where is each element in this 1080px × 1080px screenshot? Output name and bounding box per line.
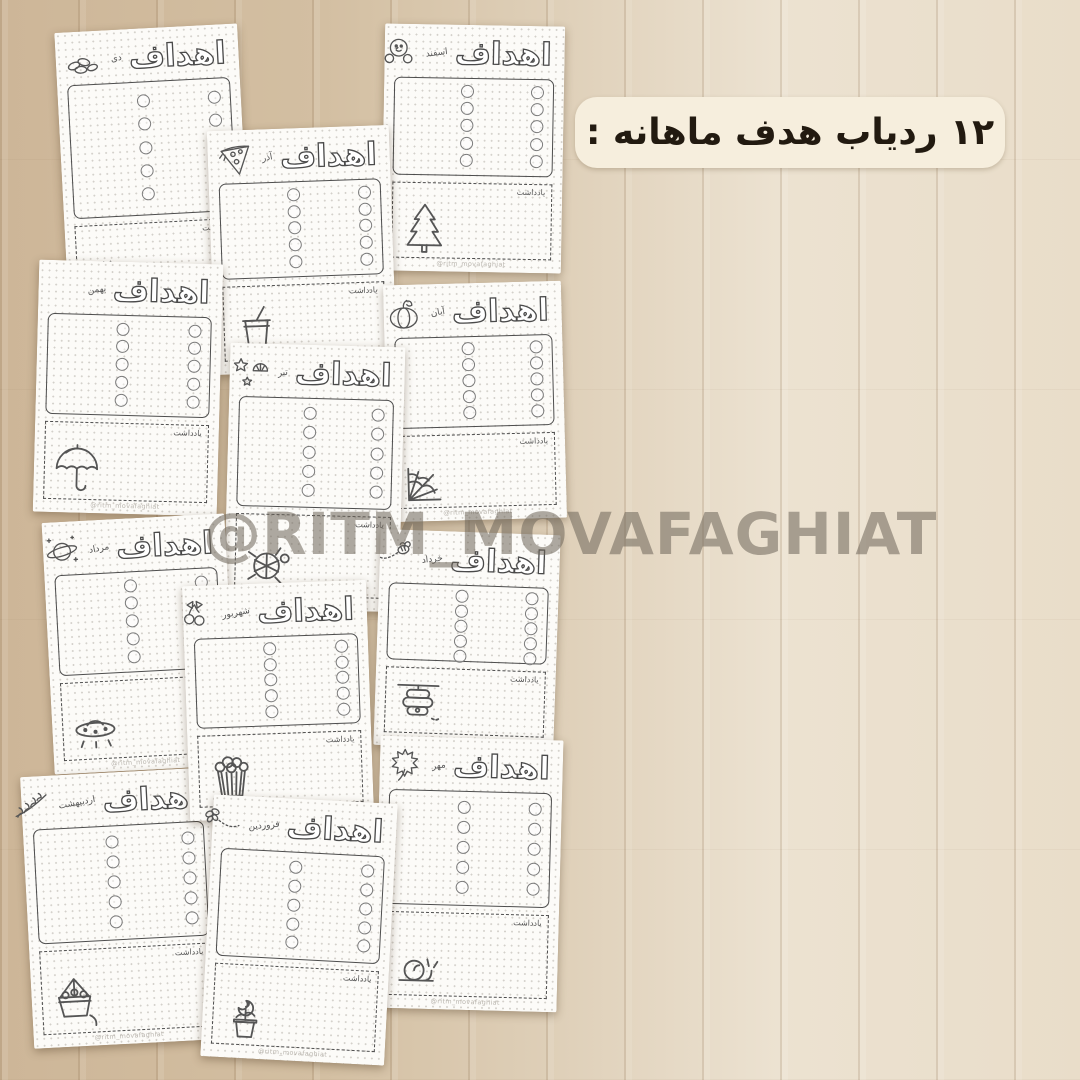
notes-label: یادداشت bbox=[519, 436, 548, 446]
month-label: اردیبهشت bbox=[58, 795, 96, 812]
goal-checkbox-circle bbox=[303, 426, 316, 439]
goal-row bbox=[38, 911, 208, 935]
goal-checkbox-circle bbox=[265, 705, 278, 718]
goal-checkbox-circle bbox=[527, 883, 540, 896]
page-header: اهداف آبان bbox=[392, 287, 553, 337]
notes-box: یادداشت bbox=[39, 943, 214, 1036]
goal-checkbox-circle bbox=[188, 360, 201, 373]
goals-checkbox-box bbox=[394, 334, 554, 429]
page-header: اهداف آذر bbox=[216, 131, 382, 183]
title-badge: ۱۲ ردیاب هدف ماهانه : bbox=[575, 97, 1005, 168]
goal-checkbox-circle bbox=[530, 340, 543, 353]
goal-checkbox-circle bbox=[524, 637, 537, 650]
goal-checkbox-circle bbox=[359, 902, 373, 916]
goal-checkbox-circle bbox=[288, 879, 302, 893]
goal-checkbox-circle bbox=[337, 687, 350, 700]
goal-checkbox-circle bbox=[302, 465, 315, 478]
planner-page: اهداف فروردین یادداشت @ritm_movafaghiat bbox=[200, 794, 397, 1065]
goal-checkbox-circle bbox=[529, 803, 542, 816]
goal-checkbox-circle bbox=[531, 372, 544, 385]
goal-checkbox-circle bbox=[115, 358, 128, 371]
goal-checkbox-circle bbox=[209, 114, 223, 128]
goal-checkbox-circle bbox=[188, 342, 201, 355]
notes-box: یادداشت bbox=[397, 432, 557, 509]
goal-checkbox-circle bbox=[185, 911, 199, 925]
pizza-icon bbox=[215, 139, 256, 180]
snowman-icon bbox=[379, 32, 420, 73]
page-title: اهداف bbox=[453, 751, 550, 785]
goal-checkbox-circle bbox=[289, 238, 302, 251]
goal-checkbox-circle bbox=[208, 91, 222, 105]
goal-checkbox-circle bbox=[456, 841, 469, 854]
notes-box: یادداشت bbox=[391, 182, 552, 261]
goal-checkbox-circle bbox=[456, 590, 469, 603]
goal-checkbox-circle bbox=[530, 138, 543, 151]
goal-checkbox-circle bbox=[139, 141, 153, 155]
seashells-icon bbox=[230, 352, 271, 393]
month-label: دی bbox=[110, 53, 123, 65]
goal-checkbox-circle bbox=[370, 447, 383, 460]
goal-row bbox=[388, 859, 549, 878]
goals-checkbox-box bbox=[386, 582, 549, 664]
month-label: بهمن bbox=[87, 284, 107, 296]
goal-checkbox-circle bbox=[457, 801, 470, 814]
month-label: اسفند bbox=[425, 47, 448, 60]
page-title: اهداف bbox=[112, 275, 209, 309]
page-title: اهداف bbox=[452, 295, 549, 329]
goal-checkbox-circle bbox=[187, 377, 200, 390]
goal-checkbox-circle bbox=[456, 861, 469, 874]
goal-checkbox-circle bbox=[336, 655, 349, 668]
goal-checkbox-circle bbox=[358, 921, 372, 935]
goal-checkbox-circle bbox=[137, 118, 151, 132]
title-badge-label: ۱۲ ردیاب هدف ماهانه : bbox=[586, 112, 994, 153]
goal-row bbox=[390, 799, 551, 818]
goal-row bbox=[397, 404, 553, 423]
page-header: اهداف اردیبهشت bbox=[29, 774, 204, 829]
goal-checkbox-circle bbox=[107, 875, 121, 889]
goals-checkbox-box bbox=[219, 178, 384, 279]
goal-checkbox-circle bbox=[531, 388, 544, 401]
goal-row bbox=[46, 391, 208, 410]
goal-checkbox-circle bbox=[289, 255, 302, 268]
goal-checkbox-circle bbox=[523, 652, 536, 665]
notes-box: یادداشت bbox=[384, 911, 549, 999]
notes-box: یادداشت bbox=[43, 421, 209, 503]
goal-checkbox-circle bbox=[461, 342, 474, 355]
goal-checkbox-circle bbox=[370, 466, 383, 479]
goal-checkbox-circle bbox=[530, 155, 543, 168]
month-label: آذر bbox=[261, 152, 273, 164]
month-label: فروردین bbox=[248, 820, 280, 833]
goal-checkbox-circle bbox=[463, 406, 476, 419]
goal-checkbox-circle bbox=[454, 635, 467, 648]
notes-label: یادداشت bbox=[355, 520, 384, 530]
goal-checkbox-circle bbox=[263, 642, 276, 655]
goal-checkbox-circle bbox=[105, 835, 119, 849]
page-header: اهداف دی bbox=[64, 30, 231, 85]
goal-checkbox-circle bbox=[289, 860, 303, 874]
page-header: اهداف بهمن bbox=[47, 266, 214, 316]
planner-page: اهداف بهمن یادداشت @ritm_movafaghiat bbox=[33, 260, 224, 517]
goal-checkbox-circle bbox=[371, 428, 384, 441]
notes-label: یادداشت bbox=[349, 285, 378, 295]
goal-checkbox-circle bbox=[460, 153, 473, 166]
goal-row bbox=[35, 851, 205, 875]
cherries-icon bbox=[174, 594, 215, 635]
planner-page: اهداف شهریور یادداشت @ritm_movafaghiat bbox=[182, 580, 374, 821]
page-title: اهداف bbox=[295, 358, 392, 392]
goal-row bbox=[34, 831, 204, 855]
goal-checkbox-circle bbox=[360, 883, 374, 897]
goal-checkbox-circle bbox=[460, 136, 473, 149]
goal-checkbox-circle bbox=[455, 605, 468, 618]
goal-checkbox-circle bbox=[124, 596, 138, 610]
butterfly-icon bbox=[200, 803, 242, 845]
goal-checkbox-circle bbox=[455, 620, 468, 633]
goal-checkbox-circle bbox=[335, 639, 348, 652]
notes-label: یادداشت bbox=[343, 974, 372, 984]
goal-checkbox-circle bbox=[181, 831, 195, 845]
goal-checkbox-circle bbox=[264, 658, 277, 671]
goal-checkbox-circle bbox=[187, 395, 200, 408]
page-header: اهداف مهر bbox=[388, 742, 554, 792]
goals-checkbox-box bbox=[194, 633, 361, 728]
goal-checkbox-circle bbox=[532, 404, 545, 417]
umbrella-icon bbox=[49, 441, 104, 496]
beehive-icon bbox=[390, 674, 446, 730]
goal-checkbox-circle bbox=[115, 376, 128, 389]
goal-checkbox-circle bbox=[457, 821, 470, 834]
month-label: آبان bbox=[430, 307, 446, 319]
goal-row bbox=[47, 374, 209, 393]
goal-checkbox-circle bbox=[285, 936, 299, 950]
page-title: اهداف bbox=[257, 594, 355, 628]
goal-checkbox-circle bbox=[109, 915, 123, 929]
goal-checkbox-circle bbox=[461, 85, 474, 98]
planner-page: اهداف اسفند یادداشت @ritm_movafaghiat bbox=[381, 23, 565, 273]
lavender-icon bbox=[11, 785, 53, 827]
goal-checkbox-circle bbox=[287, 898, 301, 912]
page-title: اهداف bbox=[128, 38, 226, 74]
notes-label: یادداشت bbox=[510, 674, 539, 684]
goal-checkbox-circle bbox=[116, 322, 129, 335]
goal-row bbox=[69, 90, 231, 113]
goal-checkbox-circle bbox=[303, 445, 316, 458]
goal-checkbox-circle bbox=[287, 188, 300, 201]
rose-pot-icon bbox=[217, 986, 274, 1043]
notes-label: یادداشت bbox=[175, 947, 204, 957]
goal-checkbox-circle bbox=[336, 671, 349, 684]
goal-row bbox=[388, 839, 549, 858]
month-label: شهریور bbox=[221, 606, 250, 621]
notes-label: یادداشت bbox=[517, 188, 546, 197]
goal-checkbox-circle bbox=[530, 356, 543, 369]
goal-row bbox=[395, 101, 553, 119]
goal-checkbox-circle bbox=[357, 939, 371, 953]
goal-row bbox=[395, 84, 553, 102]
month-label: تیر bbox=[277, 368, 288, 379]
goal-checkbox-circle bbox=[304, 407, 317, 420]
goal-row bbox=[47, 356, 209, 375]
goal-row bbox=[48, 321, 210, 340]
goal-row bbox=[238, 463, 391, 482]
planet-icon bbox=[41, 530, 83, 572]
goal-checkbox-circle bbox=[528, 843, 541, 856]
planner-page: اهداف خرداد یادداشت @ritm_movafaghiat bbox=[373, 529, 560, 751]
ufo-icon bbox=[67, 700, 124, 757]
goal-checkbox-circle bbox=[184, 891, 198, 905]
goal-checkbox-circle bbox=[125, 614, 139, 628]
goal-checkbox-circle bbox=[461, 119, 474, 132]
goal-checkbox-circle bbox=[461, 102, 474, 115]
planner-page: اهداف مهر یادداشت @ritm_movafaghiat bbox=[373, 736, 563, 1013]
goals-checkbox-box bbox=[386, 789, 552, 908]
goal-checkbox-circle bbox=[361, 864, 375, 878]
page-header: اهداف فروردین bbox=[220, 801, 388, 856]
goal-row bbox=[394, 135, 552, 153]
page-header: اهداف خرداد bbox=[388, 535, 552, 587]
goals-checkbox-box bbox=[33, 821, 210, 945]
page-title: اهداف bbox=[450, 545, 548, 579]
goal-checkbox-circle bbox=[302, 484, 315, 497]
goal-row bbox=[389, 819, 550, 838]
goal-row bbox=[394, 118, 552, 136]
goal-checkbox-circle bbox=[136, 94, 150, 108]
goal-checkbox-circle bbox=[462, 390, 475, 403]
goal-checkbox-circle bbox=[183, 871, 197, 885]
goal-checkbox-circle bbox=[526, 592, 539, 605]
month-label: مرداد bbox=[88, 542, 110, 556]
goal-checkbox-circle bbox=[337, 702, 350, 715]
snail-icon bbox=[390, 937, 445, 992]
goals-checkbox-box bbox=[236, 396, 394, 510]
goal-row bbox=[36, 871, 206, 895]
goal-checkbox-circle bbox=[140, 164, 154, 178]
notes-label: یادداشت bbox=[173, 429, 202, 439]
seeds-icon bbox=[63, 39, 105, 81]
poster-canvas: @RITM_MOVAFAGHIAT ۱۲ ردیاب هدف ماهانه : … bbox=[0, 0, 1080, 1080]
notes-box: یادداشت bbox=[211, 963, 379, 1052]
month-label: مهر bbox=[432, 760, 447, 772]
goal-checkbox-circle bbox=[288, 221, 301, 234]
goals-checkbox-box bbox=[45, 313, 212, 419]
page-header: اهداف تیر bbox=[238, 349, 396, 399]
goals-checkbox-box bbox=[393, 77, 555, 178]
goal-checkbox-circle bbox=[359, 219, 372, 232]
goal-checkbox-circle bbox=[369, 486, 382, 499]
goal-checkbox-circle bbox=[358, 185, 371, 198]
pumpkin-icon bbox=[383, 293, 424, 334]
goal-checkbox-circle bbox=[461, 358, 474, 371]
page-header: اهداف مرداد bbox=[51, 520, 218, 575]
goal-row bbox=[217, 932, 380, 955]
goal-checkbox-circle bbox=[531, 120, 544, 133]
goal-row bbox=[387, 879, 548, 898]
page-title: اهداف bbox=[286, 812, 384, 848]
goal-row bbox=[239, 424, 392, 443]
goal-checkbox-circle bbox=[127, 650, 141, 664]
planner-page: اهداف آذر یادداشت @ritm_movafaghiat bbox=[207, 125, 397, 375]
goal-row bbox=[238, 444, 391, 463]
goal-checkbox-circle bbox=[115, 393, 128, 406]
goal-checkbox-circle bbox=[371, 409, 384, 422]
goal-checkbox-circle bbox=[288, 205, 301, 218]
goal-row bbox=[48, 338, 210, 357]
goal-checkbox-circle bbox=[116, 340, 129, 353]
goal-row bbox=[239, 405, 392, 424]
goal-checkbox-circle bbox=[182, 851, 196, 865]
goal-checkbox-circle bbox=[108, 895, 122, 909]
goal-checkbox-circle bbox=[531, 86, 544, 99]
goals-checkbox-box bbox=[216, 848, 385, 965]
pine-tree-icon bbox=[397, 200, 452, 255]
page-header: اهداف شهریور bbox=[191, 586, 359, 638]
goal-checkbox-circle bbox=[531, 103, 544, 116]
goal-row bbox=[37, 891, 207, 915]
flower-basket-icon bbox=[47, 974, 104, 1031]
goal-checkbox-circle bbox=[359, 202, 372, 215]
page-title: اهداف bbox=[102, 781, 200, 817]
goal-row bbox=[394, 152, 552, 170]
goal-checkbox-circle bbox=[525, 607, 538, 620]
goal-checkbox-circle bbox=[126, 632, 140, 646]
goal-checkbox-circle bbox=[106, 855, 120, 869]
notes-box: یادداشت bbox=[384, 666, 546, 738]
goal-checkbox-circle bbox=[462, 374, 475, 387]
page-title: اهداف bbox=[115, 528, 213, 564]
page-header: اهداف اسفند bbox=[393, 30, 556, 79]
goal-checkbox-circle bbox=[455, 881, 468, 894]
page-title: اهداف bbox=[455, 38, 552, 71]
goal-checkbox-circle bbox=[123, 579, 137, 593]
goal-checkbox-circle bbox=[360, 236, 373, 249]
goal-checkbox-circle bbox=[286, 917, 300, 931]
notes-label: یادداشت bbox=[326, 734, 355, 744]
goal-checkbox-circle bbox=[525, 622, 538, 635]
goal-checkbox-circle bbox=[527, 863, 540, 876]
goal-checkbox-circle bbox=[265, 689, 278, 702]
spiderweb-icon bbox=[403, 449, 458, 504]
goal-checkbox-circle bbox=[141, 187, 155, 201]
goal-row bbox=[237, 482, 390, 501]
month-label: خرداد bbox=[422, 554, 444, 566]
goal-checkbox-circle bbox=[360, 252, 373, 265]
notes-label: یادداشت bbox=[513, 918, 542, 928]
maple-leaf-icon bbox=[385, 745, 426, 786]
goal-checkbox-circle bbox=[188, 324, 201, 337]
goal-checkbox-circle bbox=[454, 650, 467, 663]
goal-checkbox-circle bbox=[264, 673, 277, 686]
planner-page: اهداف آبان یادداشت @ritm_movafaghiat bbox=[383, 281, 567, 523]
goal-row bbox=[222, 252, 382, 273]
bee-icon bbox=[374, 538, 415, 579]
goal-checkbox-circle bbox=[528, 823, 541, 836]
page-title: اهداف bbox=[280, 139, 378, 173]
